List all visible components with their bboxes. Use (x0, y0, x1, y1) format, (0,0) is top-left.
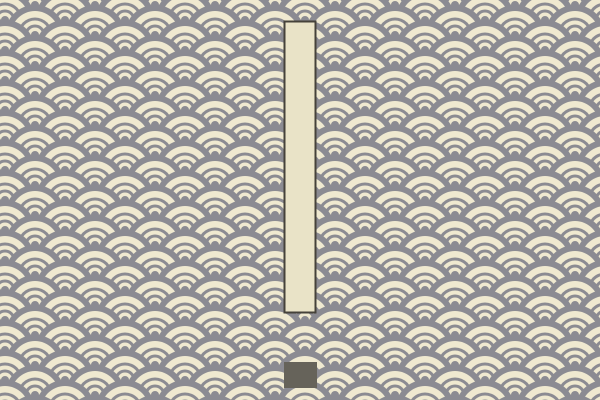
block[interactable] (284, 362, 317, 388)
paddle[interactable] (285, 22, 316, 313)
game-stage (0, 0, 600, 400)
scene-canvas (0, 0, 600, 400)
